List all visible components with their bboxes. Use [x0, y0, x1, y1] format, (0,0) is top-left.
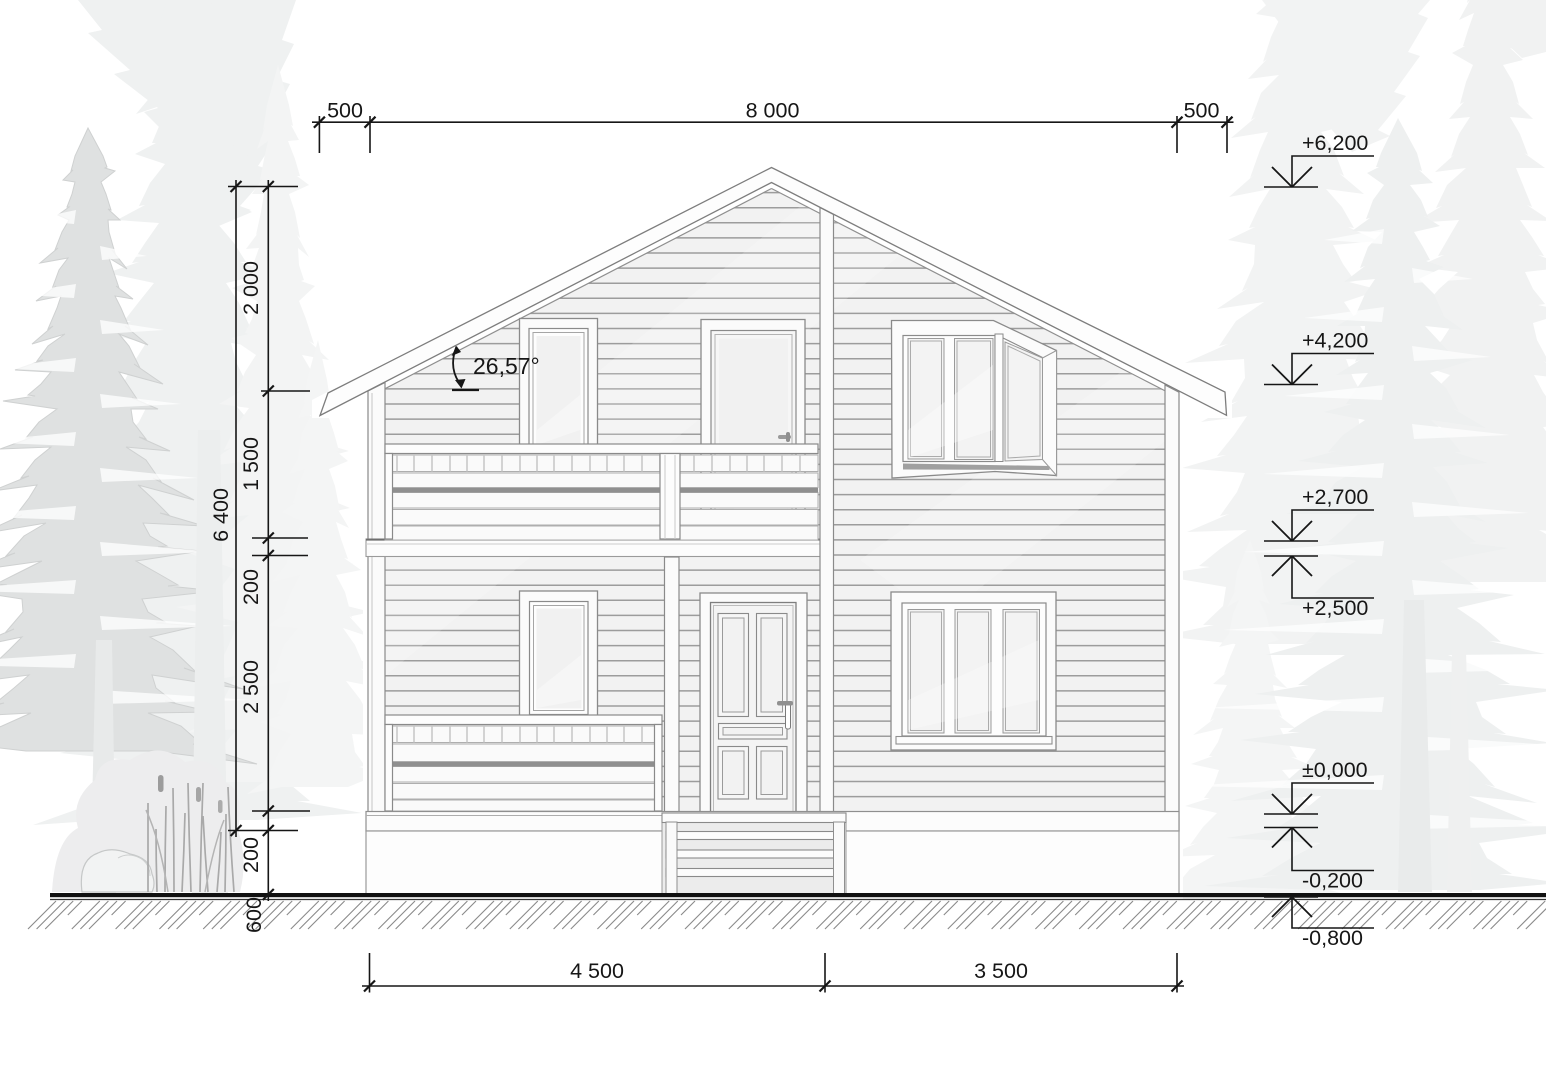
svg-text:±0,000: ±0,000 [1302, 758, 1368, 782]
svg-text:200: 200 [239, 569, 263, 605]
svg-text:500: 500 [1184, 99, 1220, 123]
svg-text:2 500: 2 500 [239, 660, 263, 714]
svg-text:8 000: 8 000 [746, 99, 800, 123]
svg-text:3 500: 3 500 [974, 959, 1028, 983]
svg-text:2 000: 2 000 [239, 261, 263, 315]
svg-text:1 500: 1 500 [239, 437, 263, 491]
svg-text:+6,200: +6,200 [1302, 131, 1368, 155]
svg-text:+2,500: +2,500 [1302, 596, 1368, 620]
svg-text:500: 500 [327, 99, 363, 123]
svg-text:26,57°: 26,57° [473, 353, 540, 379]
svg-text:+2,700: +2,700 [1302, 485, 1368, 509]
svg-text:4 500: 4 500 [570, 959, 624, 983]
svg-text:-0,800: -0,800 [1302, 926, 1363, 950]
svg-text:600: 600 [242, 897, 266, 933]
svg-text:6 400: 6 400 [209, 488, 233, 542]
svg-text:200: 200 [239, 837, 263, 873]
svg-text:-0,200: -0,200 [1302, 869, 1363, 893]
svg-text:+4,200: +4,200 [1302, 329, 1368, 353]
